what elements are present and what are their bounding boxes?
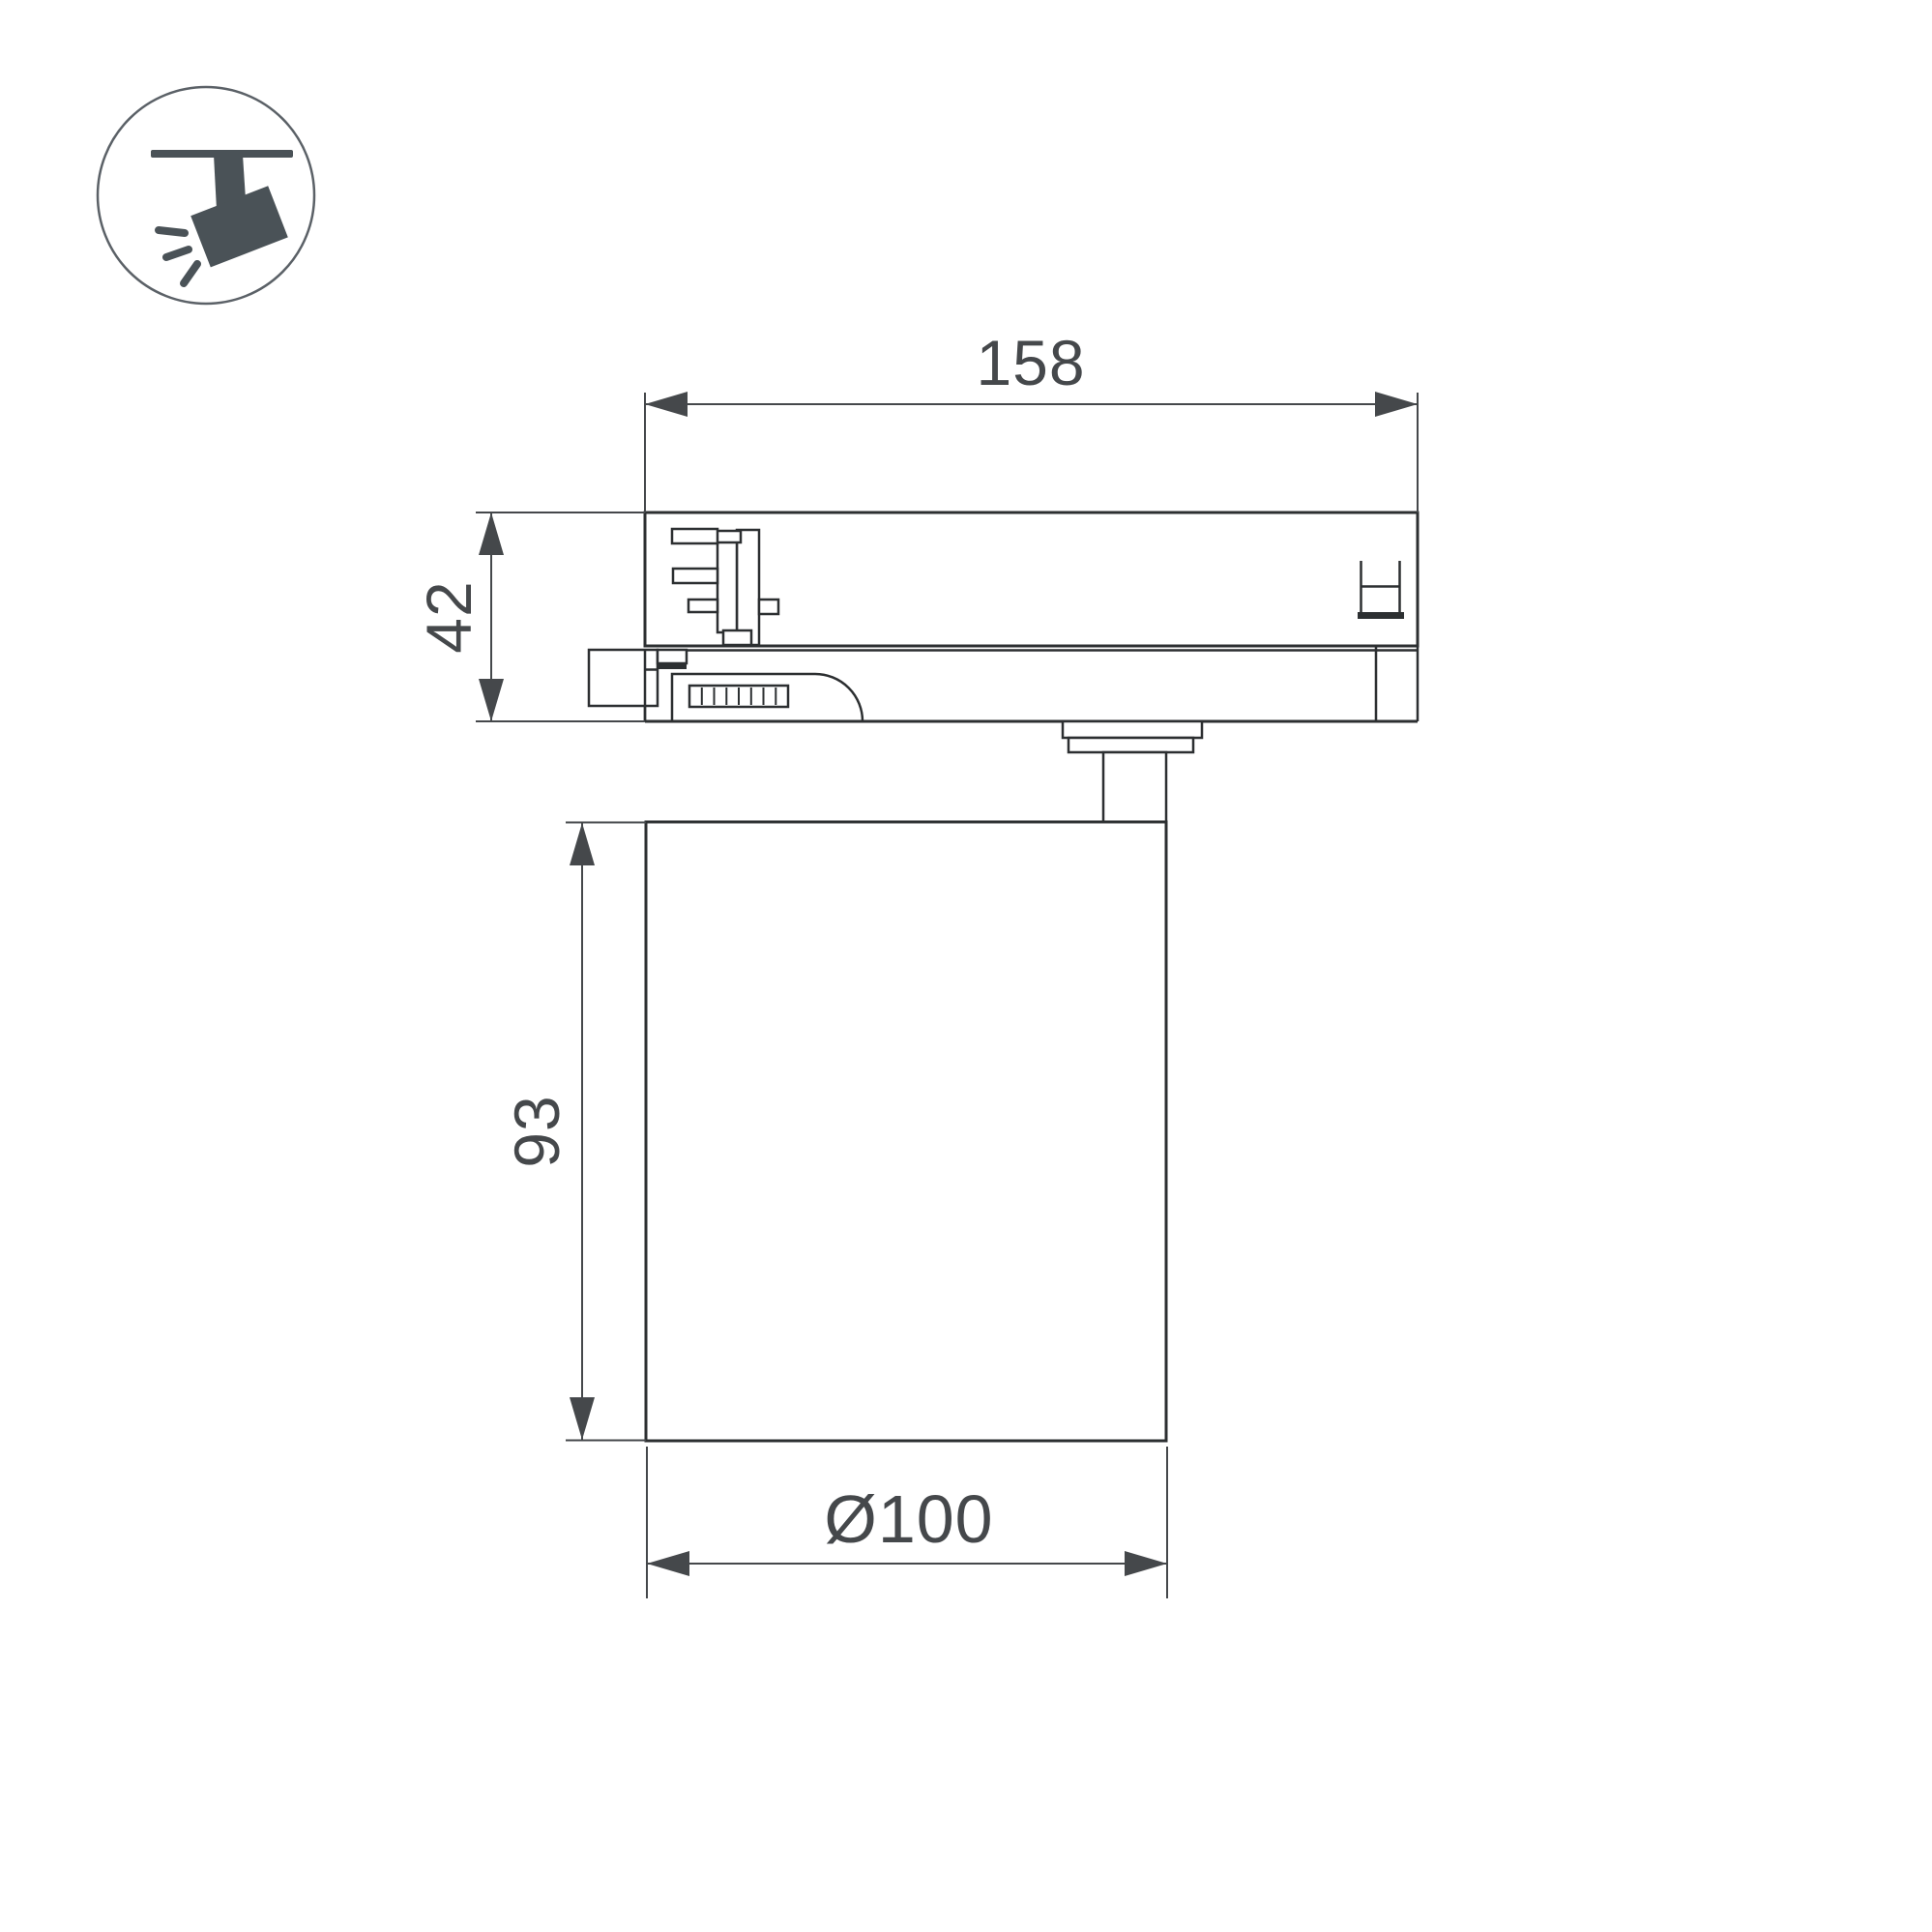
dimension-label-width: 158 — [976, 327, 1085, 398]
dimension-label-body-diameter: Ø100 — [824, 1481, 993, 1557]
dimension-label-body-height: 93 — [501, 1095, 572, 1167]
dimension-label-adapter-height: 42 — [413, 580, 484, 653]
dimension-lamp-body-height: 93 — [501, 823, 646, 1441]
technical-drawing-page: 158 42 93 Ø100 — [0, 0, 1932, 1932]
lamp-cylinder-body — [646, 822, 1166, 1441]
swivel-flange-upper — [1063, 721, 1202, 738]
adapter-lower-plate — [645, 646, 1418, 721]
lever-tab — [658, 650, 687, 663]
ribbed-adjuster — [689, 686, 788, 707]
lever-tab-bar — [658, 664, 687, 669]
technical-drawing-svg: 158 42 93 Ø100 — [0, 0, 1932, 1932]
contact-prong-right — [759, 600, 778, 614]
lamp-stem — [1103, 752, 1166, 822]
lever-block — [589, 650, 658, 706]
adapter-upper-housing — [645, 512, 1418, 646]
icon-circle — [98, 87, 314, 304]
track-spotlight-icon — [98, 87, 314, 304]
track-adapter — [589, 512, 1418, 721]
contact-prong-top — [672, 529, 717, 543]
lamp-assembly — [646, 721, 1202, 1441]
contact-prong-middle — [673, 569, 717, 583]
swivel-flange-lower — [1068, 738, 1193, 752]
dimension-lamp-body-diameter: Ø100 — [647, 1447, 1167, 1598]
prong-column — [737, 530, 759, 645]
dimension-track-adapter-width: 158 — [645, 327, 1418, 512]
dial-housing — [672, 674, 863, 721]
prong-center-bar — [717, 540, 737, 632]
contact-prong-bottom — [688, 600, 717, 612]
prong-foot — [723, 630, 751, 645]
